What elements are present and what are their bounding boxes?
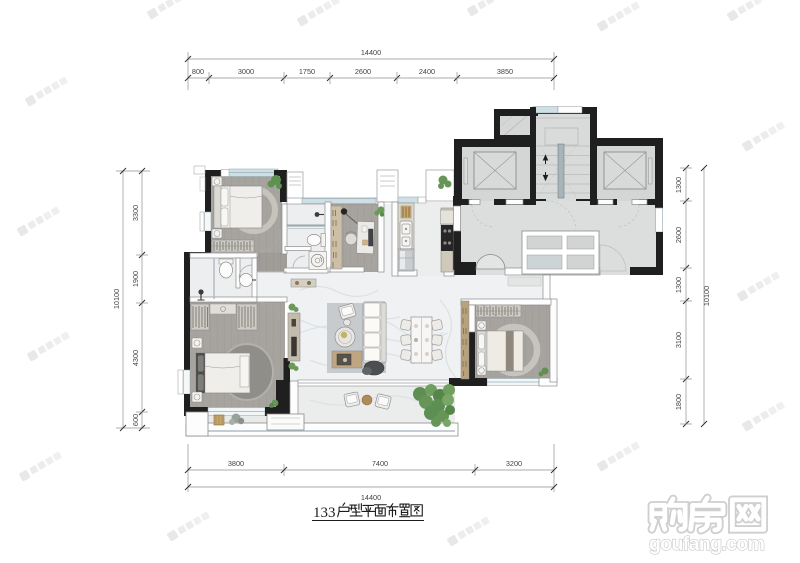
svg-text:7400: 7400: [372, 459, 388, 468]
svg-text:3200: 3200: [506, 459, 522, 468]
svg-text:1900: 1900: [131, 271, 140, 287]
svg-text:800: 800: [192, 67, 204, 76]
svg-text:4300: 4300: [131, 350, 140, 366]
svg-text:1750: 1750: [299, 67, 315, 76]
svg-text:1300: 1300: [674, 177, 683, 193]
svg-text:1300: 1300: [674, 277, 683, 293]
svg-text:1800: 1800: [674, 394, 683, 410]
svg-text:10100: 10100: [702, 286, 711, 306]
svg-text:2400: 2400: [419, 67, 435, 76]
svg-text:10100: 10100: [112, 289, 121, 309]
svg-text:600: 600: [131, 414, 140, 426]
svg-text:14400: 14400: [361, 48, 381, 57]
svg-text:3300: 3300: [131, 205, 140, 221]
svg-text:2600: 2600: [355, 67, 371, 76]
svg-text:3100: 3100: [674, 332, 683, 348]
svg-text:3850: 3850: [497, 67, 513, 76]
svg-text:3800: 3800: [228, 459, 244, 468]
svg-text:2600: 2600: [674, 227, 683, 243]
svg-text:goufang.com: goufang.com: [649, 533, 765, 555]
svg-text:14400: 14400: [361, 493, 381, 502]
svg-text:3000: 3000: [238, 67, 254, 76]
svg-text:133: 133: [313, 505, 336, 521]
